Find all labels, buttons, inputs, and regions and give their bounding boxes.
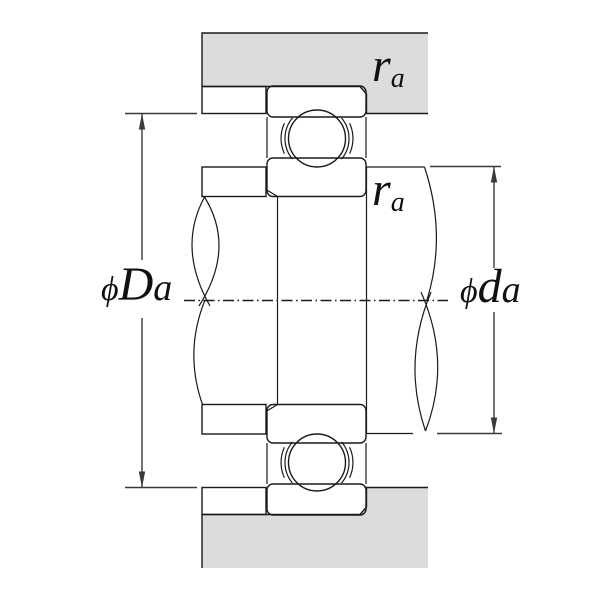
outer-ring-bottom xyxy=(267,484,366,515)
ra-shaft-subscript: a xyxy=(391,189,405,217)
phi-da-symbol: d xyxy=(478,260,502,313)
shaft-shoulder-block-top xyxy=(202,167,266,197)
outer-ring-top xyxy=(267,86,366,117)
phi-Da-symbol: D xyxy=(119,258,154,311)
label-ra-shaft: ra xyxy=(372,166,405,214)
phi-Da-suffix: a xyxy=(153,267,172,309)
arrowhead-Da-top xyxy=(139,114,145,130)
ra-housing-symbol: r xyxy=(372,39,391,92)
phi-da-suffix: a xyxy=(502,269,521,311)
housing-shoulder-block-bottom xyxy=(202,488,266,515)
label-phi-Da: ϕDa xyxy=(101,261,172,309)
bearing-mounting-diagram: ra ra ϕDa ϕda xyxy=(0,0,600,600)
shaft-shoulder-block-bottom xyxy=(202,405,266,435)
phi-Da-prefix: ϕ xyxy=(101,271,119,308)
arrowhead-Da-bottom xyxy=(139,472,145,488)
ra-shaft-symbol: r xyxy=(372,163,391,216)
ra-housing-subscript: a xyxy=(391,65,405,93)
inner-ring-top xyxy=(267,158,366,197)
housing-shoulder-block-top xyxy=(202,87,266,114)
label-ra-housing: ra xyxy=(372,42,405,90)
arrowhead-da-top xyxy=(491,167,497,183)
phi-da-prefix: ϕ xyxy=(460,273,478,310)
arrowhead-da-bottom xyxy=(491,418,497,434)
label-phi-da: ϕda xyxy=(460,263,521,311)
housing-bottom xyxy=(202,488,428,569)
inner-ring-bottom xyxy=(267,405,366,444)
